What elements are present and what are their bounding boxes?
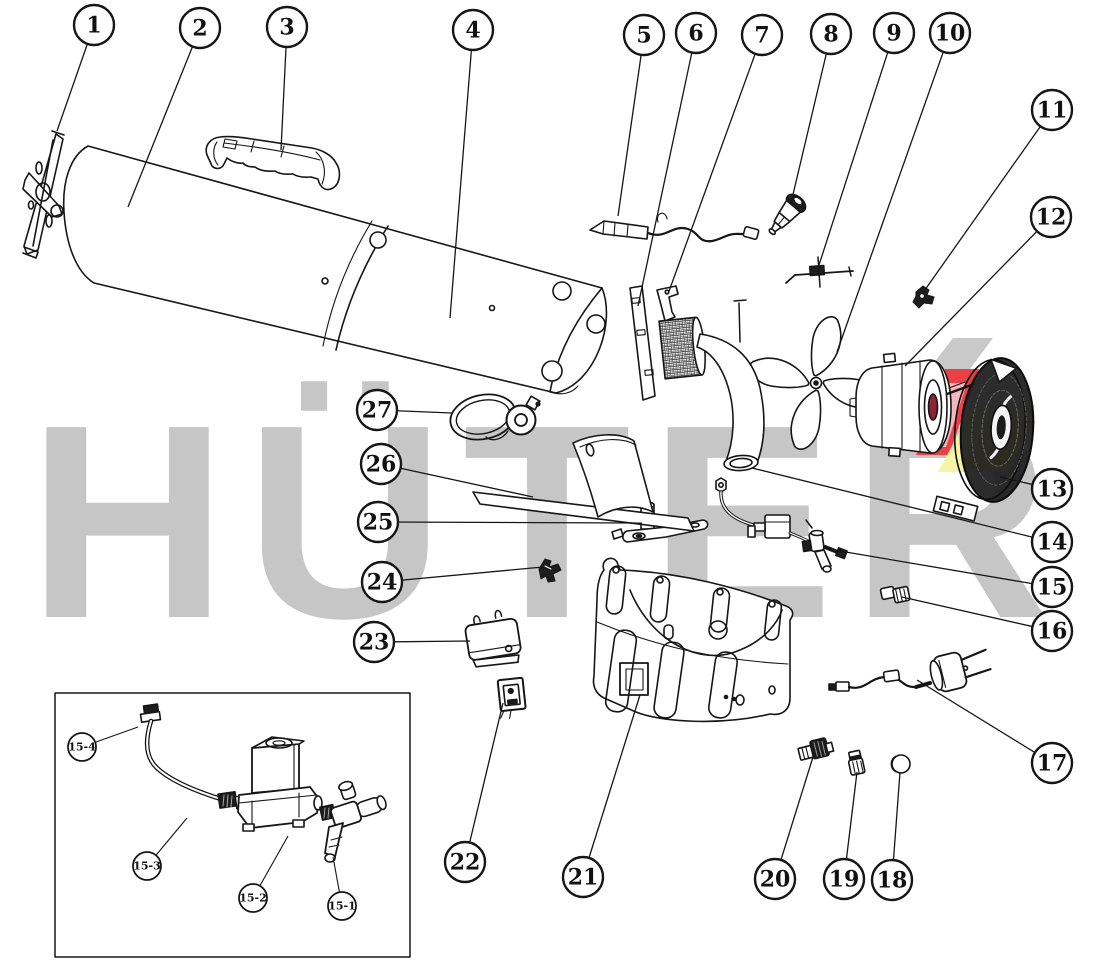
callout-number-10: 10 <box>935 20 966 46</box>
callout-number-8: 8 <box>823 21 838 47</box>
inset-callout-number-15-2: 15-2 <box>239 892 267 905</box>
callout-number-12: 12 <box>1036 204 1067 230</box>
callout-number-4: 4 <box>465 17 480 43</box>
part-drawing-screw-clip <box>913 286 934 308</box>
part-drawing-inset-pipe <box>141 704 247 809</box>
callout-number-23: 23 <box>359 629 390 655</box>
leader-line-5 <box>618 35 644 216</box>
callout-number-15: 15 <box>1037 574 1068 600</box>
leader-line-17 <box>917 680 1052 763</box>
part-drawing-small-bracket <box>657 286 678 321</box>
leader-line-10 <box>837 33 950 352</box>
part-drawing-spark-plug <box>763 191 809 240</box>
inset-callout-number-15-1: 15-1 <box>328 900 356 913</box>
callout-number-3: 3 <box>279 14 294 40</box>
callout-number-25: 25 <box>363 509 394 535</box>
leader-line-9 <box>819 33 894 265</box>
callout-number-6: 6 <box>688 20 703 46</box>
callout-number-18: 18 <box>877 867 908 893</box>
part-drawing-carry-handle <box>206 137 339 190</box>
leader-line-21 <box>583 695 640 877</box>
part-drawing-fitting-20 <box>797 736 834 762</box>
callout-number-5: 5 <box>636 22 651 48</box>
callout-number-24: 24 <box>367 569 398 595</box>
callout-number-20: 20 <box>760 866 791 892</box>
part-drawing-fitting-19 <box>847 750 865 775</box>
part-drawing-cap <box>891 755 910 773</box>
callout-number-19: 19 <box>829 866 860 892</box>
callout-number-26: 26 <box>366 451 397 477</box>
leader-line-6 <box>638 33 696 306</box>
callout-number-17: 17 <box>1037 750 1068 776</box>
part-drawing-temp-sensor <box>590 213 759 241</box>
part-drawing-inset-solenoid <box>238 737 322 831</box>
part-drawing-inlet-grille <box>23 131 64 258</box>
callout-number-2: 2 <box>192 15 207 41</box>
callout-number-9: 9 <box>886 20 901 46</box>
callout-number-13: 13 <box>1037 476 1068 502</box>
part-drawing-inset-nozzle <box>320 772 389 862</box>
callout-number-14: 14 <box>1037 529 1068 555</box>
leader-line-8 <box>791 34 831 203</box>
parts-diagram-canvas: HÜTER <box>0 0 1095 969</box>
callout-number-22: 22 <box>450 849 481 875</box>
inset-callout-number-15-3: 15-3 <box>133 860 161 873</box>
callout-number-1: 1 <box>86 12 101 38</box>
leader-line-7 <box>668 35 762 294</box>
leader-line-22 <box>465 703 503 862</box>
inset-detail-box <box>55 693 410 957</box>
callout-number-7: 7 <box>754 22 769 48</box>
callout-number-11: 11 <box>1037 97 1068 123</box>
callout-number-27: 27 <box>362 397 393 423</box>
inset-callout-number-15-4: 15-4 <box>68 741 96 754</box>
leader-line-11 <box>922 110 1052 294</box>
callout-number-16: 16 <box>1037 618 1068 644</box>
callout-number-21: 21 <box>568 864 599 890</box>
